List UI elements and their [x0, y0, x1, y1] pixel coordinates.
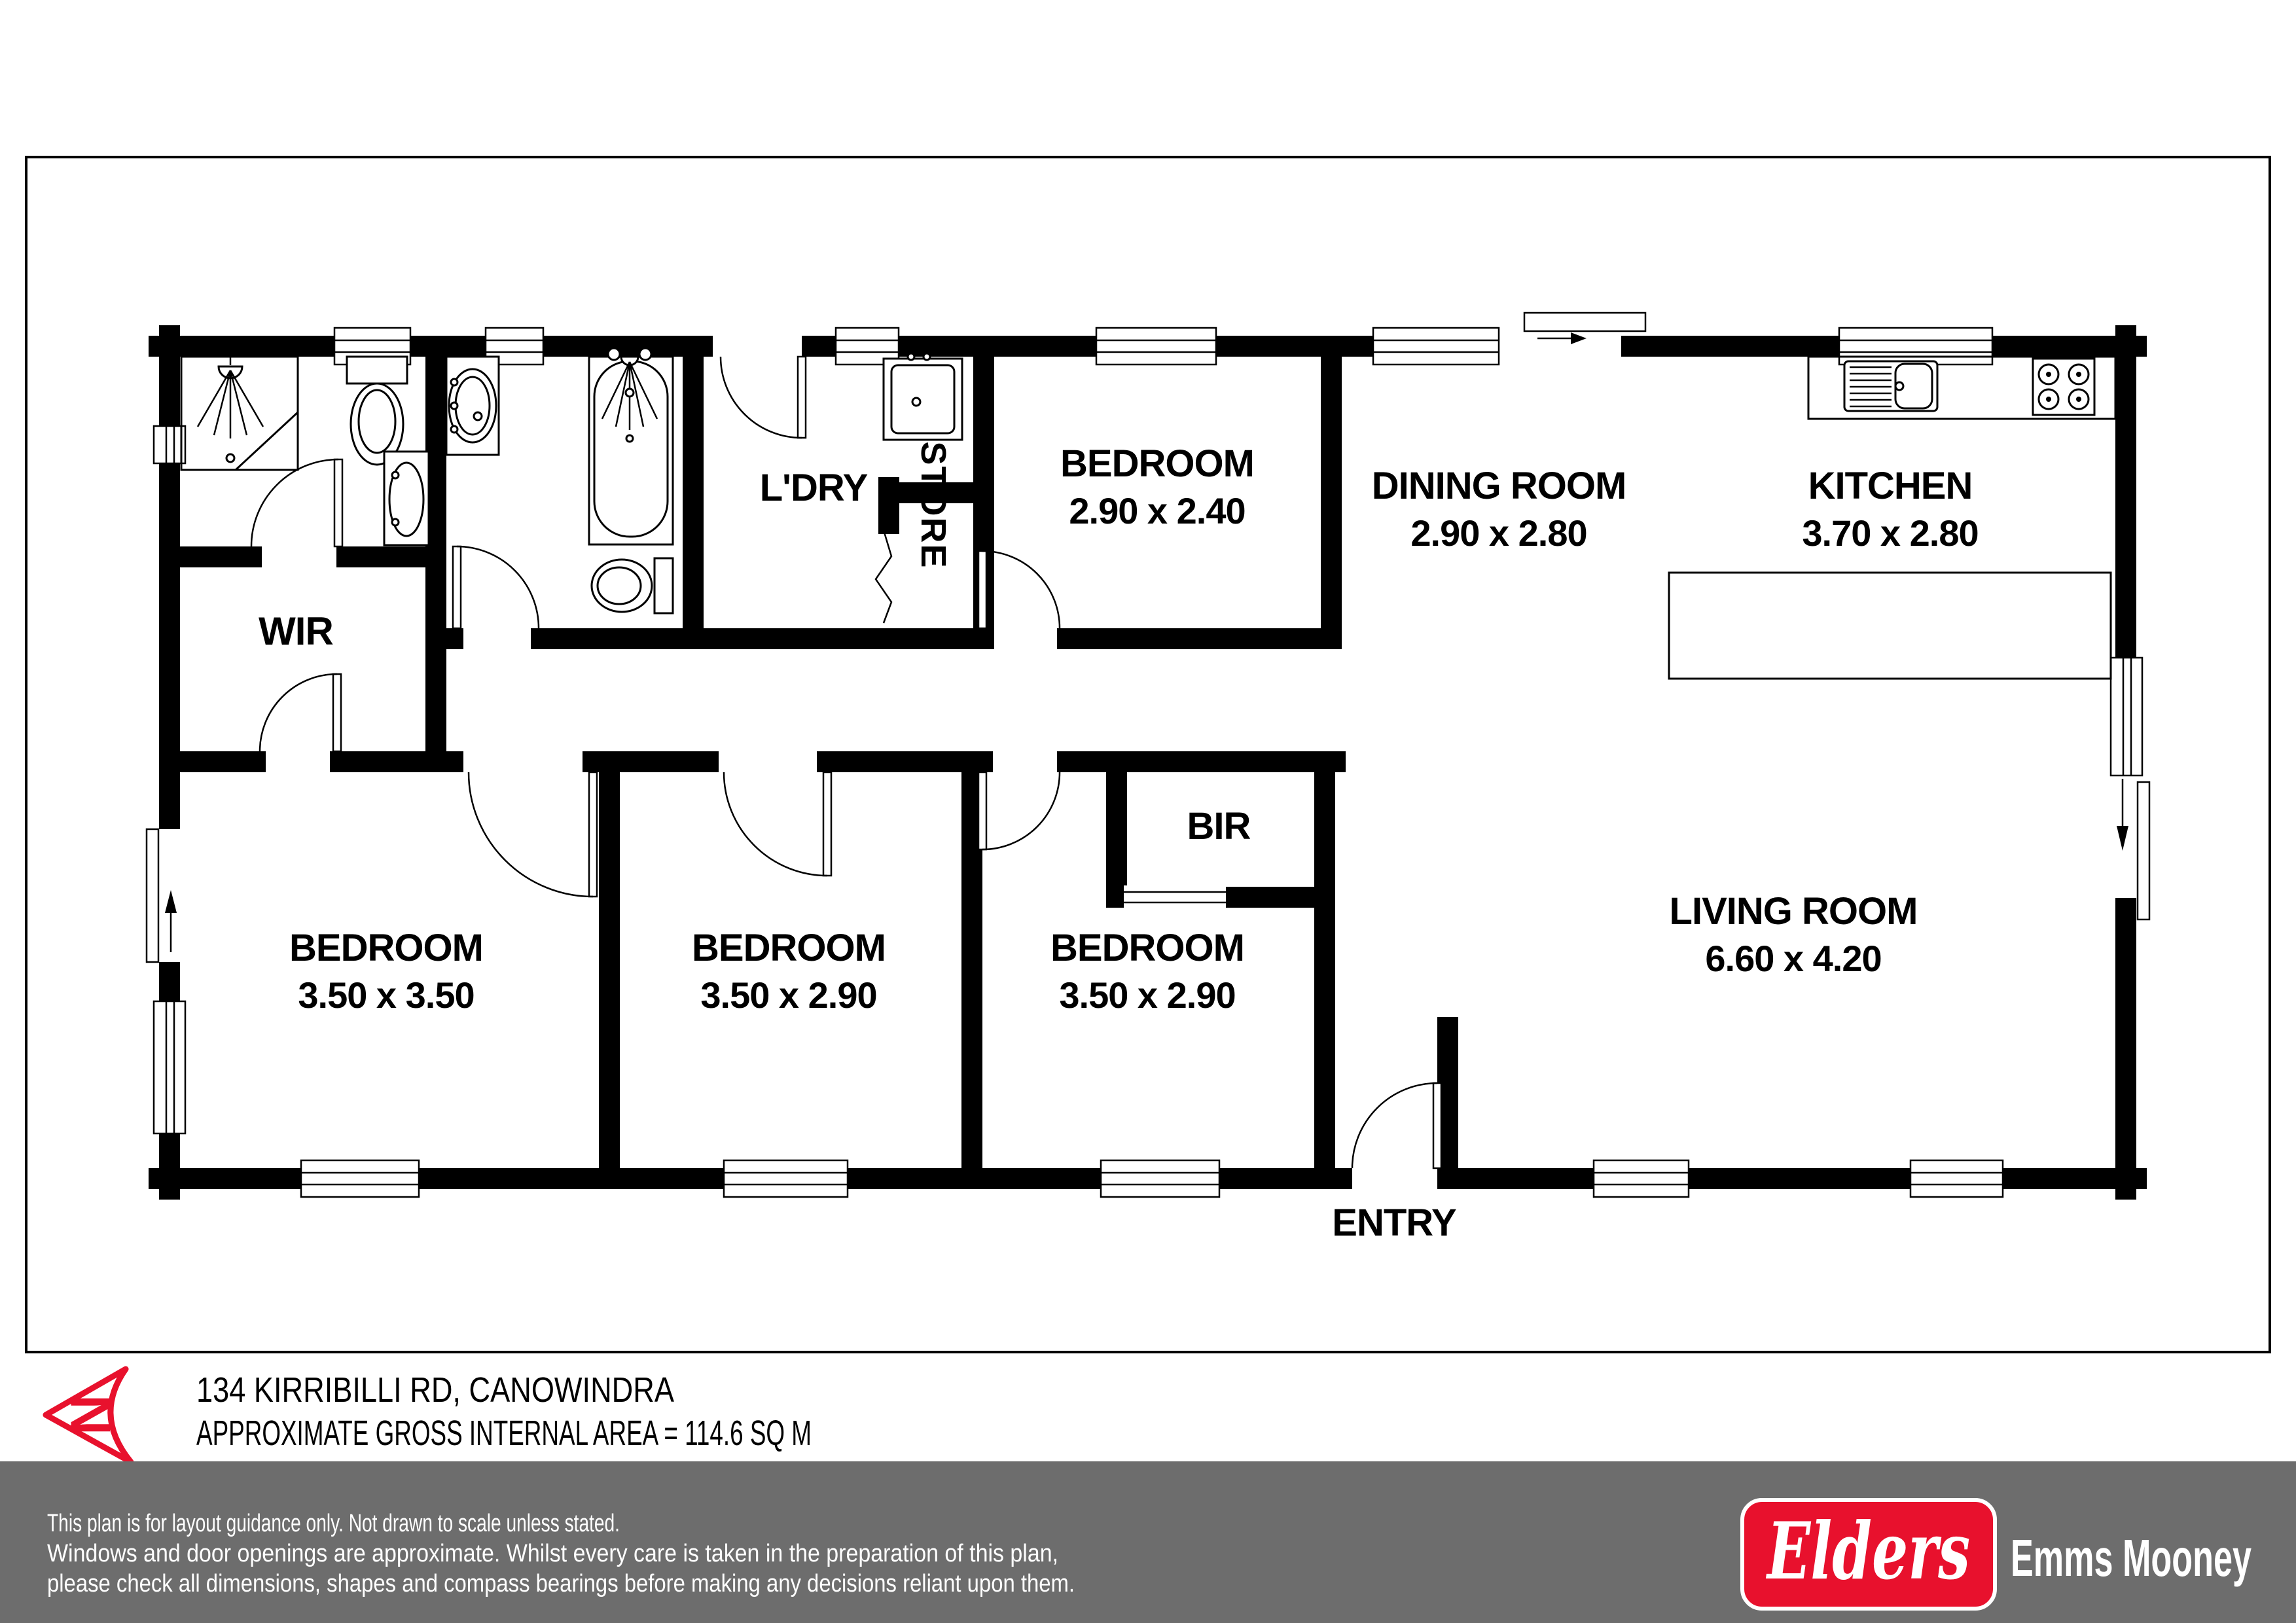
kitchen-sink-icon: [1844, 361, 1937, 411]
room-dims-kitchen: 3.70 x 2.80: [1802, 512, 1978, 554]
rear-door-panel: [1524, 313, 1645, 331]
disclaimer-line-3: please check all dimensions, shapes and …: [47, 1570, 1075, 1597]
area-line: APPROXIMATE GROSS INTERNAL AREA = 114.6 …: [196, 1414, 812, 1453]
room-label-store: STORE: [914, 441, 953, 569]
entry-door-gap: [1352, 1166, 1437, 1192]
bathtub-icon: [589, 348, 673, 544]
room-label-bedroom-top: BEDROOM: [1060, 442, 1254, 485]
room-label-ldry: L'DRY: [760, 467, 868, 509]
bir-opening: [1124, 885, 1226, 909]
room-label-living: LIVING ROOM: [1670, 890, 1918, 933]
north-letter: N: [60, 1395, 122, 1435]
elders-logo-text: Elders: [1766, 1505, 1970, 1597]
room-dims-bedroom-1: 3.50 x 3.50: [298, 974, 474, 1016]
room-dims-bedroom-3: 3.50 x 2.90: [1059, 974, 1235, 1016]
footer-bar: This plan is for layout guidance only. N…: [0, 1461, 2296, 1623]
laundry-door-gap: [713, 332, 802, 361]
rear-door-gap: [1499, 332, 1621, 361]
room-dims-dining: 2.90 x 2.80: [1410, 512, 1587, 554]
room-label-bedroom-2: BEDROOM: [692, 927, 886, 969]
disclaimer-line-1: This plan is for layout guidance only. N…: [47, 1510, 620, 1537]
basin-icon: [384, 452, 429, 545]
toilet-icon: [347, 357, 407, 465]
room-label-dining: DINING ROOM: [1372, 465, 1626, 507]
toilet-icon: [592, 558, 673, 613]
room-label-wir: WIR: [259, 609, 333, 653]
room-label-kitchen: KITCHEN: [1808, 465, 1973, 507]
cooktop-icon: [2033, 359, 2094, 415]
room-label-entry: ENTRY: [1332, 1202, 1456, 1244]
room-label-bir: BIR: [1187, 805, 1251, 847]
room-label-bedroom-3: BEDROOM: [1050, 927, 1244, 969]
agency-name: Emms Mooney: [2011, 1529, 2251, 1587]
north-arrow-icon: N: [46, 1369, 131, 1462]
address-line: 134 KIRRIBILLI RD, CANOWINDRA: [196, 1370, 674, 1410]
elders-logo: Elders: [1742, 1500, 1995, 1609]
room-dims-bedroom-2: 3.50 x 2.90: [700, 974, 876, 1016]
floorplan-page: L'DRY STORE WIR BIR BEDROOM 2.90 x 2.40 …: [0, 0, 2296, 1623]
room-dims-bedroom-top: 2.90 x 2.40: [1069, 490, 1245, 531]
room-label-bedroom-1: BEDROOM: [289, 927, 483, 969]
laundry-sink-icon: [884, 353, 962, 440]
basin-icon: [446, 357, 499, 455]
room-dims-living: 6.60 x 4.20: [1705, 938, 1881, 979]
disclaimer-line-2: Windows and door openings are approximat…: [47, 1540, 1058, 1567]
